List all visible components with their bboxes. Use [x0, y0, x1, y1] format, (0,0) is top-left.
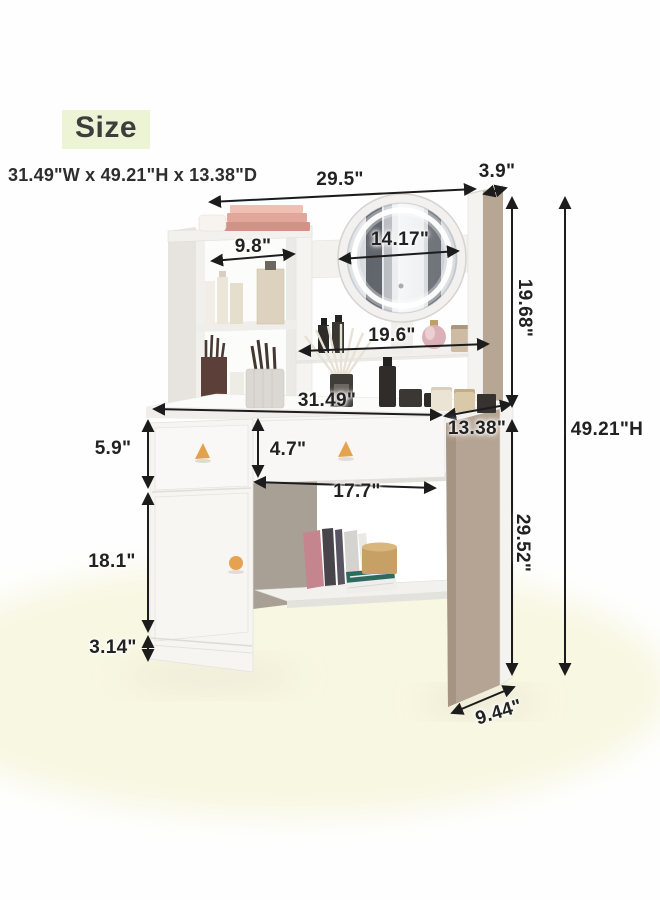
dim-lower-section-height: 29.52"	[511, 514, 533, 572]
spray-bottle	[379, 366, 396, 407]
dim-middle-shelf-width: 19.6"	[368, 325, 416, 347]
dim-desktop-depth: 13.38"	[448, 418, 506, 440]
dim-desktop-width: 31.49"	[298, 390, 356, 412]
mirror-touch-button	[399, 284, 404, 289]
dim-top-ledge-depth: 3.9"	[479, 161, 516, 183]
dim-hutch-shelf-width: 9.8"	[235, 236, 272, 258]
size-diagram: Size 31.49"W x 49.21"H x 13.38"D 29.5" 3…	[0, 0, 660, 900]
size-badge: Size	[62, 110, 150, 149]
dim-kick-base-height: 3.14"	[89, 637, 137, 659]
dim-overall-height: 49.21"H	[571, 419, 643, 441]
left-pedestal	[150, 419, 253, 672]
dim-open-shelf-width: 17.7"	[333, 481, 381, 503]
overall-dimensions-text: 31.49"W x 49.21"H x 13.38"D	[8, 165, 257, 186]
dim-mirror-diameter: 14.17"	[371, 229, 429, 251]
dim-center-drawer-height: 4.7"	[270, 439, 307, 461]
hutch-right-post	[468, 186, 503, 423]
right-side-panel	[446, 404, 513, 707]
dim-hutch-height: 19.68"	[513, 279, 535, 337]
towel-stack	[199, 205, 310, 231]
dim-top-drawer-height: 5.9"	[95, 438, 132, 460]
door-knob	[229, 556, 243, 570]
dim-cabinet-door-height: 18.1"	[88, 551, 136, 573]
dim-top-width: 29.5"	[316, 169, 364, 191]
